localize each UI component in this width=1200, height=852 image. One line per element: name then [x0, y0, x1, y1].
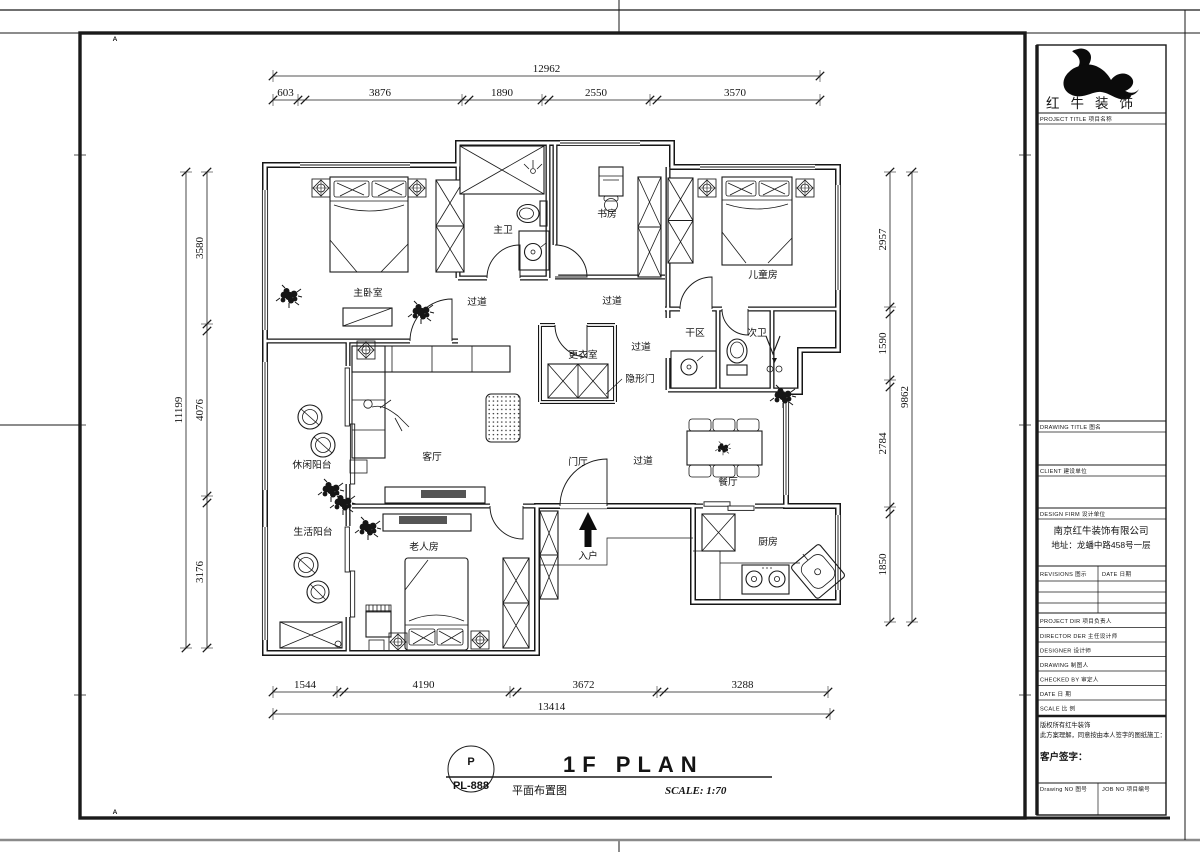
dim-label: 2550: [585, 87, 608, 99]
entry-arrow-icon: [579, 512, 597, 547]
door-swing: [555, 245, 587, 277]
tb-date: DATE 日 期: [1040, 691, 1071, 698]
grid-letter-bottom: A: [113, 809, 118, 816]
door-swing: [490, 506, 523, 539]
room-label-master-bedroom: 主卧室: [353, 286, 383, 299]
master-bedroom-furniture: [312, 177, 426, 326]
room-label-hidden-door: 隐形门: [625, 372, 654, 385]
firm-name: 南京红牛装饰有限公司: [1053, 525, 1148, 537]
dim-label: 3672: [573, 679, 595, 691]
room-label-utility-balcony: 生活阳台: [293, 525, 332, 538]
dry-area-fixtures: [671, 351, 716, 388]
title-block: 红牛装饰 PROJECT TITLE 项目名称 DRAWING TITLE 图名…: [1037, 45, 1166, 815]
room-label-corridor: 过道: [633, 454, 653, 467]
door-swing: [722, 309, 748, 335]
room-label-corridor: 过道: [631, 340, 651, 353]
room-label-dressing-room: 更衣室: [568, 348, 598, 361]
room-label-corridor: 过道: [467, 295, 487, 308]
tb-design-firm: DESIGN FIRM 设计单位: [1040, 510, 1106, 518]
tb-scale: SCALE 比 例: [1040, 705, 1075, 713]
tb-project-dir: PROJECT DIR 项目负责人: [1040, 617, 1112, 625]
door-swing: [680, 277, 712, 309]
grid-letter-top: A: [113, 36, 118, 43]
tb-drawing: DRAWING 制图人: [1040, 661, 1089, 669]
room-label-kids-room: 儿童房: [748, 268, 777, 281]
tb-date-col: DATE 日期: [1102, 571, 1131, 578]
tb-revisions: REVISIONS 图示: [1040, 570, 1087, 578]
logo-name: 红牛装饰: [1046, 96, 1144, 111]
drawing-code-letter: P: [467, 756, 474, 768]
tb-drawing-no: Drawing NO 图号: [1040, 785, 1087, 793]
room-label-entry: 入户: [578, 549, 598, 562]
tb-job-no: JOB NO 项目编号: [1102, 785, 1150, 793]
balcony-furniture: [294, 405, 341, 647]
room-label-leisure-balcony: 休闲阳台: [292, 458, 331, 471]
living-room-furniture: [350, 341, 520, 503]
door-swing: [487, 245, 520, 278]
elder-room-furniture: [366, 514, 489, 651]
tb-copyright: 版权所有红牛装饰: [1040, 720, 1090, 729]
dim-label: 3176: [194, 561, 206, 584]
rednbull-logo-icon: [1063, 49, 1139, 100]
room-label-kitchen: 厨房: [758, 535, 778, 548]
tb-client: CLIENT 建设单位: [1040, 467, 1087, 475]
kids-room-furniture: [698, 177, 814, 265]
dim-label: 1544: [294, 679, 317, 691]
room-label-living-room: 客厅: [422, 450, 442, 463]
foyer-elements: [540, 379, 693, 565]
dim-label: 3570: [724, 87, 747, 99]
tb-checked: CHECKED BY 审定人: [1040, 676, 1099, 684]
dim-label: 3876: [369, 87, 392, 99]
dim-label: 1590: [877, 332, 889, 355]
room-label-study: 书房: [597, 207, 617, 220]
room-label-elder-room: 老人房: [409, 540, 438, 553]
dim-label: 3580: [194, 237, 206, 260]
tb-designer: DESIGNER 设计师: [1040, 647, 1091, 655]
kitchen-fixtures: [693, 514, 846, 600]
tb-project-title: PROJECT TITLE 项目名称: [1040, 115, 1112, 123]
dim-label: 1850: [877, 553, 889, 576]
room-label-second-bath: 次卫: [747, 326, 767, 339]
dim-label: 4076: [194, 399, 206, 422]
study-furniture: [599, 167, 623, 212]
room-label-corridor: 过道: [602, 294, 622, 307]
tb-director: DIRECTOR DER 主任设计师: [1040, 632, 1118, 640]
dim-label: 2784: [877, 432, 889, 455]
sheet-frame: [0, 0, 1200, 852]
plan-title-cn: 平面布置图: [512, 784, 567, 797]
room-label-master-bath: 主卫: [493, 224, 513, 236]
plan-title-en: 1F PLAN: [563, 752, 704, 777]
dim-label: 3288: [732, 679, 755, 691]
dim-label: 2957: [877, 228, 889, 251]
room-label-foyer: 门厅: [568, 455, 588, 468]
dim-label: 12962: [533, 63, 561, 75]
firm-address: 地址：龙蟠中路458号一层: [1051, 540, 1150, 550]
drawing-sheet: AA: [0, 0, 1200, 852]
tb-drawing-title: DRAWING TITLE 图名: [1040, 423, 1101, 431]
drawing-code: PL-888: [453, 780, 489, 792]
plan-scale: SCALE: 1:70: [665, 785, 727, 797]
tb-note: 此方案理解，同意按由本人签字的图纸施工：: [1040, 730, 1166, 739]
dim-label: 13414: [538, 701, 566, 713]
dim-label: 9862: [899, 386, 911, 408]
grid-letters: AA: [113, 36, 118, 816]
tb-signature: 客户签字：: [1039, 751, 1088, 763]
dim-label: 11199: [173, 396, 185, 423]
dim-label: 1890: [491, 87, 514, 99]
room-label-dry-area: 干区: [685, 327, 705, 339]
dim-label: 603: [277, 87, 294, 99]
title-bar: P PL-888 1F PLAN 平面布置图 SCALE: 1:70: [446, 746, 772, 797]
dim-label: 4190: [413, 679, 436, 691]
room-label-dining-room: 餐厅: [718, 475, 738, 488]
